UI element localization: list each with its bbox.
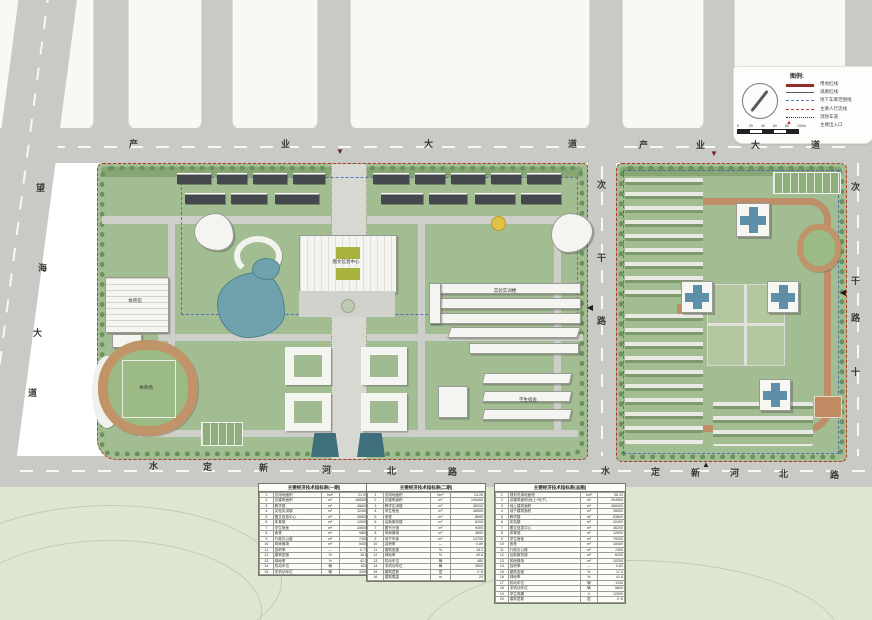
cross-tower-building: [767, 281, 799, 313]
training-building: [469, 343, 579, 354]
table-cell: m: [430, 575, 451, 580]
table-cell: 层: [581, 597, 598, 602]
dormitory-quad: [361, 393, 407, 431]
experiment-complex-spine: [429, 283, 441, 324]
road-label-char: 干: [851, 274, 860, 287]
teaching-building: [475, 193, 515, 204]
road-label-char: 北: [387, 464, 396, 477]
scale-number: 40: [761, 124, 765, 128]
teaching-building: [491, 173, 521, 184]
legend-item-label: 消防车道: [820, 114, 838, 120]
road-label-char: 水: [149, 459, 158, 472]
dash-blue-swatch-icon: [786, 100, 814, 101]
road-label-char: 产: [129, 137, 138, 150]
road-label-char: 大: [424, 137, 433, 150]
teaching-building: [415, 173, 445, 184]
south-gate-water: [357, 433, 385, 457]
solid-thick-swatch-icon: [786, 84, 814, 87]
south-gate-water: [311, 433, 339, 457]
legend-item-label: 地下车库范围线: [820, 97, 852, 103]
road-label-char: 水: [601, 464, 610, 477]
road-label-char: 业: [696, 138, 705, 151]
road-label-char: 道: [568, 137, 577, 150]
scale-number: 0: [737, 124, 739, 128]
legend-item-label: 主要出入口: [820, 122, 843, 128]
building-label: 实验实训楼: [494, 288, 517, 294]
teaching-building: [451, 173, 485, 184]
teaching-building: [527, 173, 561, 184]
library-courtyard: [336, 247, 360, 259]
legend-title: 图例:: [790, 71, 804, 80]
road-label-char: 道: [28, 386, 37, 399]
teaching-building: [429, 193, 467, 204]
dormitory-quad: [285, 347, 331, 385]
row-building-cluster: [625, 314, 703, 444]
table-row: 20建筑层数层2~6: [496, 597, 625, 602]
compass-icon: [742, 83, 778, 119]
legend-item-label: 主要人行流线: [820, 106, 847, 112]
table-cell: 15: [260, 569, 274, 574]
sports-courts: [773, 172, 841, 194]
entrance-marker-icon: ▼: [710, 150, 718, 158]
road-label-char: 定: [203, 460, 212, 473]
indicator-table: 1总用地面积hm²14.262总建筑面积m²1264003教学实训楼m²3820…: [367, 492, 485, 581]
road-label-char: 业: [281, 137, 290, 150]
teaching-building: [521, 193, 561, 204]
scale-numbers: 020406080100m: [737, 124, 799, 128]
cross-tower-building: [681, 281, 713, 313]
entrance-marker-icon: ◀: [587, 304, 593, 312]
dormitory-quad: [285, 393, 331, 431]
scale-number: 20: [749, 124, 753, 128]
legend-panel: 图例: 用地红线道路红线地下车库范围线主要人行流线消防车道▲主要出入口 0204…: [733, 66, 872, 144]
lane-marking: [20, 470, 872, 472]
scale-segments: [737, 129, 799, 134]
road-label-char: 路: [830, 468, 839, 481]
road-label-char: 河: [730, 466, 739, 479]
campus-lake: [217, 272, 285, 338]
indicator-table-phase2: 主要经济技术指标表(二期)1总用地面积hm²14.262总建筑面积m²12640…: [366, 483, 486, 582]
road-label-char: 十: [851, 365, 860, 378]
table-cell: 建筑层数: [508, 597, 580, 602]
scale-number: 80: [785, 124, 789, 128]
city-block: [350, 0, 590, 130]
campus-pond: [252, 258, 280, 280]
scale-number: 100m: [797, 124, 806, 128]
practice-track: [797, 224, 841, 272]
legend-item-label: 道路红线: [820, 89, 838, 95]
training-building: [447, 327, 581, 338]
indicator-table-phase1: 主要经济技术指标表(一期)1总用地面积hm²21.932总建筑面积m²16850…: [258, 483, 370, 576]
teaching-building: [177, 173, 211, 184]
city-block: [622, 0, 704, 130]
dot-black-swatch-icon: [786, 117, 814, 118]
building-label: 图文信息中心: [333, 259, 360, 265]
road-label-char: 道: [811, 138, 820, 151]
indicator-table-overall: 主要经济技术指标表(总图)1规划总用地面积hm²36.192总建筑面积(地上+地…: [494, 483, 626, 604]
dash-red-swatch-icon: [786, 109, 814, 110]
practice-infield: [803, 230, 835, 266]
teaching-building: [217, 173, 247, 184]
teaching-building: [275, 193, 319, 204]
teaching-building: [373, 173, 409, 184]
table-cell: 辆: [321, 569, 339, 574]
road-label-char: 定: [651, 465, 660, 478]
road-label-char: 路: [851, 311, 860, 324]
central-plaza: [299, 291, 395, 317]
cross-tower-building: [736, 203, 770, 237]
building-label: 学生宿舍: [519, 397, 537, 403]
basketball-courts: [814, 396, 842, 418]
city-block: [232, 0, 318, 130]
indicator-table: 1规划总用地面积hm²36.192总建筑面积(地上+地下)m²2949003地上…: [495, 492, 625, 603]
dormitory-slab: [482, 409, 572, 420]
building-label: 体育馆: [128, 298, 142, 304]
table-cell: 3200: [339, 569, 368, 574]
road-label-char: 北: [779, 467, 788, 480]
gymnasium-building: [105, 277, 169, 333]
building-label: 体育场: [139, 385, 153, 391]
road-label-char: 路: [448, 465, 457, 478]
campus-west-parcel: [97, 163, 588, 460]
table-title: 主要经济技术指标表(一期): [259, 484, 369, 492]
road-label-char: 次: [597, 178, 606, 191]
legend-item-label: 用地红线: [820, 81, 838, 87]
teaching-building: [381, 193, 423, 204]
table-row: 16建筑限高m24: [368, 575, 485, 580]
dormitory-slab: [482, 373, 572, 384]
sports-courts: [201, 422, 243, 446]
city-block: [128, 0, 202, 130]
art-center-building: [551, 213, 593, 253]
master-plan-canvas: 图例: 用地红线道路红线地下车库范围线主要人行流线消防车道▲主要出入口 0204…: [0, 0, 872, 620]
teaching-building: [253, 173, 287, 184]
table-cell: 非机动车位: [273, 569, 321, 574]
dormitory-quad: [361, 347, 407, 385]
table-cell: 16: [368, 575, 384, 580]
road-label-char: 海: [38, 261, 47, 274]
road-label-char: 产: [639, 138, 648, 151]
scale-number: 60: [773, 124, 777, 128]
auditorium-building: [194, 213, 234, 251]
solid-thin-swatch-icon: [786, 92, 814, 93]
road-label-char: 大: [751, 138, 760, 151]
indicator-table: 1总用地面积hm²21.932总建筑面积m²1685003教学楼m²456004…: [259, 492, 369, 575]
compass-needle-icon: [750, 90, 768, 112]
teaching-building: [185, 193, 225, 204]
campus-east-parcel: [616, 163, 847, 462]
road-label-char: 次: [851, 180, 860, 193]
road-label-char: 新: [259, 461, 268, 474]
landmark-dome: [491, 216, 506, 231]
table-cell: 2~6: [597, 597, 624, 602]
teaching-building: [231, 193, 267, 204]
road-label-char: 河: [322, 463, 331, 476]
entrance-marker-icon: ◀: [840, 289, 846, 297]
road-label-char: 新: [691, 466, 700, 479]
library-courtyard: [336, 268, 360, 280]
table-cell: 24: [451, 575, 485, 580]
table-title: 主要经济技术指标表(总图): [495, 484, 625, 492]
entrance-marker-icon: ▲: [702, 461, 710, 469]
road-label-char: 望: [36, 181, 45, 194]
teaching-building: [293, 173, 325, 184]
plaza-fountain: [341, 299, 355, 313]
experiment-complex-wing: [429, 298, 581, 309]
road-label-char: 大: [33, 326, 42, 339]
cross-tower-building: [759, 379, 791, 411]
experiment-complex-wing: [429, 313, 581, 324]
table-cell: 建筑限高: [383, 575, 430, 580]
road-label-char: 干: [597, 251, 606, 264]
table-row: 15非机动车位辆3200: [260, 569, 369, 574]
road-label-char: 路: [597, 314, 606, 327]
lane-marking: [601, 166, 603, 456]
quad-path: [708, 323, 784, 326]
table-cell: 20: [496, 597, 509, 602]
canteen-building: [438, 386, 468, 418]
table-title: 主要经济技术指标表(二期): [367, 484, 485, 492]
entrance-marker-icon: ▼: [336, 148, 344, 156]
scale-bar: 020406080100m: [737, 124, 799, 134]
